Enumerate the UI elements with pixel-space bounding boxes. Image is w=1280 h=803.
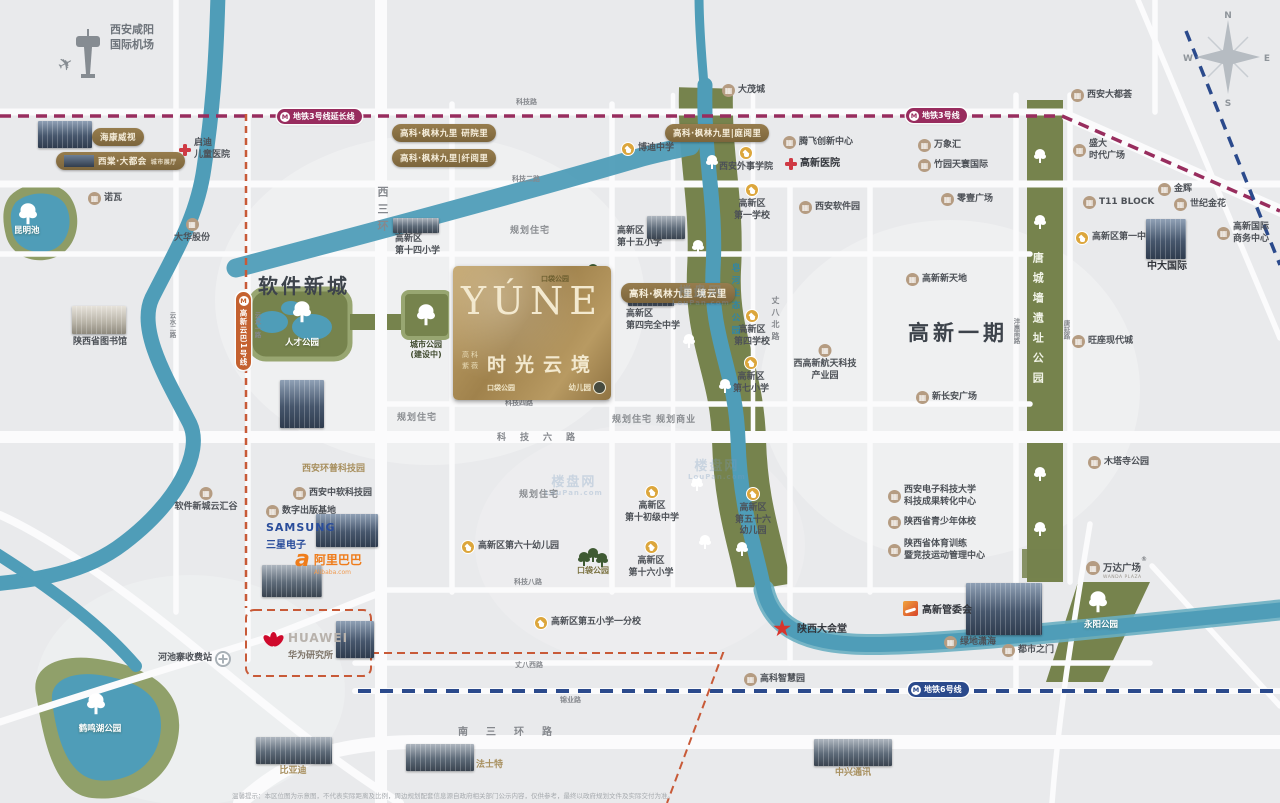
poi-plan-res-biz: 规划住宅 规划商业 [612, 415, 696, 427]
badge-label: 高科·枫林九里|庭阅里 [673, 127, 761, 139]
poi-city-park: 城市公园 (建设中) [410, 340, 442, 361]
road-label-west-3rd-ring: 西三环 [374, 186, 390, 237]
wanda-icon: ▦ [1086, 561, 1100, 575]
poi-label: 高新区 第十初级中学 [625, 501, 679, 524]
poi-label: 比亚迪 [279, 766, 306, 778]
poi-label: 高新区第五小学一分校 [551, 617, 641, 629]
alibaba-cn-label: 阿里巴巴 [314, 551, 362, 568]
poi-zte: 中兴通讯 [835, 768, 871, 780]
poi-label: 软件新城云汇谷 [174, 502, 237, 514]
wanda-reg-mark: ® [1141, 556, 1147, 563]
poi-zhihuiyuan: ▦高科智慧园 [744, 673, 805, 686]
poi-shaanxi-hall: ★陕西大会堂 [770, 617, 847, 641]
badge-building-pic [64, 155, 94, 167]
bldg-icon: ▦ [918, 159, 931, 172]
watermark-text: 楼盘网 [688, 460, 746, 474]
watermark: 楼盘网LouPan.com [688, 460, 746, 482]
poi-label: 规划住宅 [397, 413, 437, 425]
road-label-fenghui-s-rd: 沣惠南路 [1011, 318, 1021, 344]
poi-qidi-hospital: 启迪 儿童医院 [178, 138, 230, 161]
poi-byd: 比亚迪 [279, 766, 306, 778]
project-name-en: YÚNE [453, 282, 611, 320]
badge-label: 高科·枫林九里|纤阅里 [400, 152, 488, 164]
poi-zhongda-intl: 中大国际 [1147, 260, 1187, 273]
bldg-icon: ▦ [293, 487, 306, 500]
poi-label: 陕西大会堂 [797, 623, 847, 636]
bldg-icon: ▦ [1158, 183, 1171, 196]
watermark: 楼盘网LouPan.com [672, 286, 730, 308]
poi-label: 西安环普科技园 [302, 464, 365, 476]
poi-plan-res-1: 规划住宅 [510, 226, 550, 238]
poi-dushizhimen: ▦都市之门 [1002, 644, 1054, 657]
map-canvas: N W S E ✈ 西安咸阳 国际机场 软件新城 高新一期 M 地铁3号线延长线… [0, 0, 1280, 803]
poi-label: 规划住宅 [510, 226, 550, 238]
badge-label: 西棠·大都会 [98, 155, 147, 167]
tree-icon [719, 379, 731, 394]
gwh-pic [966, 583, 1042, 635]
poi-wanxianghui: ▦万象汇 [918, 139, 961, 152]
poi-label: 盛大 时代广场 [1089, 139, 1125, 162]
wanda-block: ▦ 万达广场® WANDA PLAZA [1086, 556, 1147, 580]
bldg-icon: ▦ [906, 273, 919, 286]
cross-icon [784, 157, 797, 170]
tree-icon [1034, 215, 1046, 230]
bldg-icon: ▦ [888, 516, 901, 529]
bldg-icon: ▦ [941, 193, 954, 206]
metro-icon: M [911, 685, 921, 695]
school-icon [746, 487, 760, 501]
school-icon [534, 616, 548, 630]
poi-gx-4-complete: 高新区 第四完全中学 [626, 309, 680, 332]
school-icon [644, 540, 658, 554]
school-icon [744, 356, 758, 370]
project-developer-1: 高科 [462, 350, 480, 360]
badge-label: 高科·枫林九里 研院里 [400, 127, 488, 139]
tree-icon [706, 155, 718, 170]
poi-label: 博迪中学 [638, 143, 674, 155]
district-gaoxin-phase1: 高新一期 [908, 317, 1008, 347]
metro-icon: M [239, 296, 249, 306]
poi-label: 高新区 第十四小学 [395, 234, 440, 257]
poi-bodi-school: 博迪中学 [621, 142, 674, 156]
poi-label: 河池寨收费站 [158, 653, 212, 665]
poi-xinchangan: ▦新长安广场 [916, 391, 977, 404]
gaoxin-committee-logo [903, 601, 918, 616]
poi-label: 高新区 第一学校 [734, 199, 770, 222]
poi-yunhuigu: ▦软件新城云汇谷 [174, 487, 237, 514]
school-icon [1075, 231, 1089, 245]
bldg-icon: ▦ [1002, 644, 1015, 657]
poi-label: 人才公园 [285, 338, 319, 349]
road-label-zhangba-n-rd: 丈八北路 [770, 296, 781, 344]
huawei-block: HUAWEI 华为研究所 [262, 630, 348, 661]
poi-label: 诺瓦 [104, 193, 122, 205]
poi-gx-10-junior: 高新区 第十初级中学 [625, 485, 679, 524]
school-icon [461, 540, 475, 554]
poi-gaoxin-hospital: 高新医院 [784, 157, 840, 170]
wanda-cn-label: 万达广场 [1103, 563, 1141, 574]
airport-name-line1: 西安咸阳 [110, 22, 154, 37]
poi-gx-no1-school: 高新区 第一学校 [734, 183, 770, 222]
map-disclaimer: 温馨提示：本区位图为示意图，不代表实际距离及比例，周边规划配套信息源自政府相关部… [232, 790, 1072, 800]
poi-wangzuo: ▦旺座现代城 [1072, 335, 1133, 348]
poi-xa-software-park: ▦西安软件园 [799, 201, 860, 214]
poi-label: 零壹广场 [957, 194, 993, 206]
bldg-icon: ▦ [1073, 144, 1086, 157]
school-icon [645, 485, 659, 499]
bldg-icon: ▦ [744, 673, 757, 686]
road-label-keji-6-rd: 科技六路 [497, 430, 589, 443]
bldg-icon: ▦ [783, 136, 796, 149]
poi-xidian-center: ▦西安电子科技大学 科技成果转化中心 [888, 485, 976, 508]
poi-label: 启迪 儿童医院 [194, 138, 230, 161]
gaoxin-committee-label: 高新管委会 [922, 601, 972, 616]
bldg-icon: ▦ [88, 192, 101, 205]
road-label-yunshui-1-rd: 云水一路 [252, 312, 262, 338]
tree-icon [1034, 467, 1046, 482]
poi-heminghu-park: 鹤鸣湖公园 [79, 724, 122, 735]
bldg-icon: ▦ [722, 84, 735, 97]
metro-line3-ext-label: 地铁3号线延长线 [293, 111, 355, 122]
bldg-icon: ▦ [1083, 196, 1096, 209]
poi-label: 永阳公园 [1084, 620, 1118, 631]
project-badge-hikvision: 海康威视 [92, 128, 144, 146]
poi-rencai-park: 人才公园 [285, 338, 319, 349]
tree-icon [1034, 149, 1046, 164]
alibaba-logo: a [295, 551, 310, 569]
metro-line6-label: 地铁6号线 [924, 684, 962, 695]
bldg-icon: ▦ [818, 344, 831, 357]
poi-kunmingchi: 昆明池 [14, 226, 40, 237]
poi-jinhui: ▦金辉 [1158, 183, 1192, 196]
road-label-keji-rd: 科技路 [516, 97, 537, 107]
poi-shaanxi-library: 陕西省图书馆 [73, 337, 127, 349]
poi-gx-14-primary: 高新区 第十四小学 [395, 234, 440, 257]
poi-tengfei: ▦腾飞创新中心 [783, 136, 853, 149]
wanda-en-label: WANDA PLAZA [1103, 575, 1147, 580]
huawei-institute-label: 华为研究所 [288, 648, 348, 661]
poi-label: 金辉 [1174, 184, 1192, 196]
poi-label: 西安中软科技园 [309, 488, 372, 500]
bldg-icon: ▦ [266, 505, 279, 518]
poi-gx-56-kinder: 高新区 第五十六 幼儿园 [735, 487, 771, 538]
poi-label: 新长安广场 [932, 392, 977, 404]
poi-gx-60-kinder: 高新区第六十幼儿园 [461, 540, 559, 554]
tree-icon [1034, 522, 1046, 537]
road-label-tangyan-rd: 唐延路 [1061, 320, 1071, 340]
poi-zhongruan-park: ▦西安中软科技园 [293, 487, 372, 500]
airport-label: 西安咸阳 国际机场 [40, 22, 154, 53]
road-label-jinye-rd: 锦业路 [560, 695, 581, 705]
poi-fast-gear: 法士特 [476, 760, 503, 772]
poi-label: 陕西省青少年体校 [904, 517, 976, 529]
watermark: 楼盘网LouPan.com [545, 476, 603, 498]
pocket-park-label-sw: 口袋公园 [487, 383, 515, 393]
zte-pic [814, 739, 892, 766]
poi-waishi-college: 西安外事学院 [719, 146, 773, 174]
poi-label: 陕西省体育训练 暨竞技运动管理中心 [904, 539, 985, 562]
tree-icon [293, 301, 311, 324]
map-label-layer: ▦大茂城▦诺瓦▦大华股份启迪 儿童医院博迪中学西安外事学院▦腾飞创新中心高新医院… [0, 0, 1280, 803]
alibaba-block: a 阿里巴巴 Alibaba.com [295, 551, 362, 576]
cloud-rail-badge: M 高新云巴1号线 [236, 292, 251, 370]
poi-gx-5-branch: 高新区第五小学一分校 [534, 616, 641, 630]
tree-icon [692, 240, 704, 255]
poi-gx-intl-biz: ▦高新国际 商务中心 [1217, 222, 1269, 245]
cloud-rail-label: 高新云巴1号线 [238, 309, 249, 366]
poi-label: 城市公园 (建设中) [410, 340, 442, 361]
poi-zhuyuan: ▦竹园天寰国际 [918, 159, 988, 172]
project-badge-xitang: 西棠·大都会城市展厅 [56, 152, 185, 170]
poi-dahua: ▦大华股份 [174, 218, 210, 245]
poi-label: 木塔寺公园 [1104, 457, 1149, 469]
poi-label: 西高新航天科技 产业园 [793, 359, 856, 382]
star-icon: ★ [770, 617, 794, 641]
bldg-icon: ▦ [199, 487, 212, 500]
toll-icon [215, 651, 231, 667]
poi-label: 都市之门 [1018, 645, 1054, 657]
project-badge-fenglin-1: 高科·枫林九里 研院里 [392, 124, 496, 142]
project-badge-fenglin-3: 高科·枫林九里|庭阅里 [665, 124, 769, 142]
poi-label: 高新新天地 [922, 274, 967, 286]
project-badge-fenglin-2: 高科·枫林九里|纤阅里 [392, 149, 496, 167]
poi-label: 规划住宅 规划商业 [612, 415, 696, 427]
poi-hechizhai-toll: 河池寨收费站 [158, 651, 231, 667]
poi-gx-xintiandi: ▦高新新天地 [906, 273, 967, 286]
poi-gx-16-primary: 高新区 第十六小学 [628, 540, 673, 579]
poi-label: 高新区 第十六小学 [628, 556, 673, 579]
poi-label: 唐城墙遗址公园 [1030, 252, 1044, 392]
poi-label: 世纪金花 [1190, 199, 1226, 211]
school-icon [621, 142, 635, 156]
hikvision-pic [38, 121, 92, 148]
fast-pic [406, 744, 474, 771]
poi-label: 陕西省图书馆 [73, 337, 127, 349]
metro-icon: M [280, 112, 290, 122]
poi-label: 竹园天寰国际 [934, 160, 988, 172]
poi-lingyi-plaza: ▦零壹广场 [941, 193, 993, 206]
poi-gx-7-primary: 高新区 第七小学 [733, 356, 769, 395]
school-icon [739, 146, 753, 160]
road-label-zhangba-w-rd: 丈八西路 [515, 660, 543, 670]
watermark-subtext: LouPan.com [672, 300, 730, 308]
metro-line3-ext-badge: M 地铁3号线延长线 [277, 109, 362, 124]
metro-line3-label: 地铁3号线 [922, 110, 960, 121]
bldg-icon: ▦ [1174, 198, 1187, 211]
zhongda-pic [1146, 219, 1186, 259]
poi-nuowa: ▦诺瓦 [88, 192, 122, 205]
poi-label: 西安软件园 [815, 202, 860, 214]
metro-line3-badge: M 地铁3号线 [906, 108, 967, 123]
poi-youth-sports: ▦陕西省青少年体校 [888, 516, 976, 529]
airport-name-line2: 国际机场 [110, 37, 154, 52]
poi-label: 绿地潇海 [960, 637, 996, 649]
pocket-park-label-ne: 口袋公园 [541, 274, 569, 284]
poi-lvdi-xiaohai: ▦绿地潇海 [944, 636, 996, 649]
huawei-logo-text: HUAWEI [288, 631, 348, 645]
kindergarten-label: 幼儿园 [569, 382, 592, 393]
poi-label: 高新区第六十幼儿园 [478, 541, 559, 553]
metro-line6-badge: M 地铁6号线 [908, 682, 969, 697]
poi-label: 旺座现代城 [1088, 336, 1133, 348]
poi-label: 腾飞创新中心 [799, 137, 853, 149]
poi-label: 大华股份 [174, 233, 210, 245]
huawei-flower-icon [262, 630, 284, 646]
bldg-icon: ▦ [1217, 227, 1230, 240]
poi-muta-temple-park: ▦木塔寺公园 [1088, 456, 1149, 469]
poi-sports-training: ▦陕西省体育训练 暨竞技运动管理中心 [888, 539, 985, 562]
library-pic [72, 306, 126, 334]
alibaba-en-label: Alibaba.com [314, 569, 362, 576]
bldg-icon: ▦ [1071, 89, 1084, 102]
poi-shengda: ▦盛大 时代广场 [1073, 139, 1125, 162]
poi-label: 高新国际 商务中心 [1233, 222, 1269, 245]
watermark-text: 楼盘网 [545, 476, 603, 490]
poi-gx-no1-middle: 高新区第一中学 [1075, 231, 1155, 245]
bldg-icon: ▦ [918, 139, 931, 152]
poi-label: 高新区 第四完全中学 [626, 309, 680, 332]
badge-sub-label: 城市展厅 [151, 157, 177, 166]
poi-label: 昆明池 [14, 226, 40, 237]
poi-label: 鹤鸣湖公园 [79, 724, 122, 735]
project-developer-2: 紫薇 [462, 361, 480, 371]
poi-plan-res-2: 规划住宅 [397, 413, 437, 425]
poi-label: 西安大都荟 [1087, 90, 1132, 102]
poi-label: 高科智慧园 [760, 674, 805, 686]
poi-label: 中大国际 [1147, 260, 1187, 273]
road-label-yunshui-2-rd: 云水二路 [167, 312, 177, 338]
poi-label: 万象汇 [934, 140, 961, 152]
poi-damaocheng: ▦大茂城 [722, 84, 765, 97]
project-parcel-yune: YÚNE 高科 紫薇 时光云境 口袋公园 口袋公园 幼儿园 [453, 266, 611, 400]
poi-label: 法士特 [476, 760, 503, 772]
tree-icon [19, 203, 37, 226]
towers-pic [280, 380, 324, 428]
bldg-icon: ▦ [799, 201, 812, 214]
poi-label: 中兴通讯 [835, 768, 871, 780]
school15-pic [647, 216, 685, 239]
tree-icon [87, 693, 105, 716]
project-name-cn: 时光云境 [487, 350, 599, 377]
tree-icon [1089, 591, 1107, 614]
tree-icon [699, 535, 711, 550]
school-icon [745, 309, 759, 323]
watermark-subtext: LouPan.com [545, 490, 603, 498]
poi-shiji-jinhua: ▦世纪金花 [1174, 198, 1226, 211]
gaoxin-committee-block: 高新管委会 [903, 601, 972, 616]
poi-yongyang-park: 永阳公园 [1084, 620, 1118, 631]
tree-icon [736, 542, 748, 557]
bldg-icon: ▦ [1072, 335, 1085, 348]
poi-label: 西安电子科技大学 科技成果转化中心 [904, 485, 976, 508]
poi-t11-block: ▦T11 BLOCK [1083, 196, 1154, 209]
poi-tangcheng-wall-park: 唐城墙遗址公园 [1030, 252, 1044, 392]
road-label-keji-2-rd: 科技二路 [512, 174, 540, 184]
bldg-icon: ▦ [185, 218, 198, 231]
school14-pic [393, 218, 439, 233]
tree-icon [417, 304, 435, 327]
bldg-icon: ▦ [888, 490, 901, 503]
bldg-icon: ▦ [916, 391, 929, 404]
road-label-south-3rd-ring: 南三环路 [458, 723, 570, 738]
school-icon [745, 183, 759, 197]
bldg-icon: ▦ [944, 636, 957, 649]
bldg-icon: ▦ [888, 544, 901, 557]
road-label-keji-8-rd: 科技八路 [514, 577, 542, 587]
watermark-subtext: LouPan.com [688, 474, 746, 482]
poi-label: 高新区 第五十六 幼儿园 [735, 503, 771, 538]
poi-daduhui: ▦西安大都荟 [1071, 89, 1132, 102]
poi-label: 西安外事学院 [719, 162, 773, 174]
watermark-text: 楼盘网 [672, 286, 730, 300]
district-software-new-town: 软件新城 [258, 270, 350, 299]
poi-label: 高新医院 [800, 157, 840, 170]
poi-huanpu-park: 西安环普科技园 [302, 464, 365, 476]
tree-icon [683, 334, 695, 349]
poi-hangtian-park: ▦西高新航天科技 产业园 [793, 344, 856, 382]
tree-dark-icon [596, 553, 608, 568]
bldg-icon: ▦ [1088, 456, 1101, 469]
poi-label: 大茂城 [738, 85, 765, 97]
poi-label: T11 BLOCK [1099, 197, 1154, 209]
samsung-logo: SAMSUNG [266, 521, 335, 534]
kindergarten-icon [593, 381, 606, 394]
badge-label: 海康威视 [100, 131, 136, 143]
byd-pic [256, 737, 332, 764]
metro-icon: M [909, 111, 919, 121]
poi-label: 高新区 第七小学 [733, 372, 769, 395]
